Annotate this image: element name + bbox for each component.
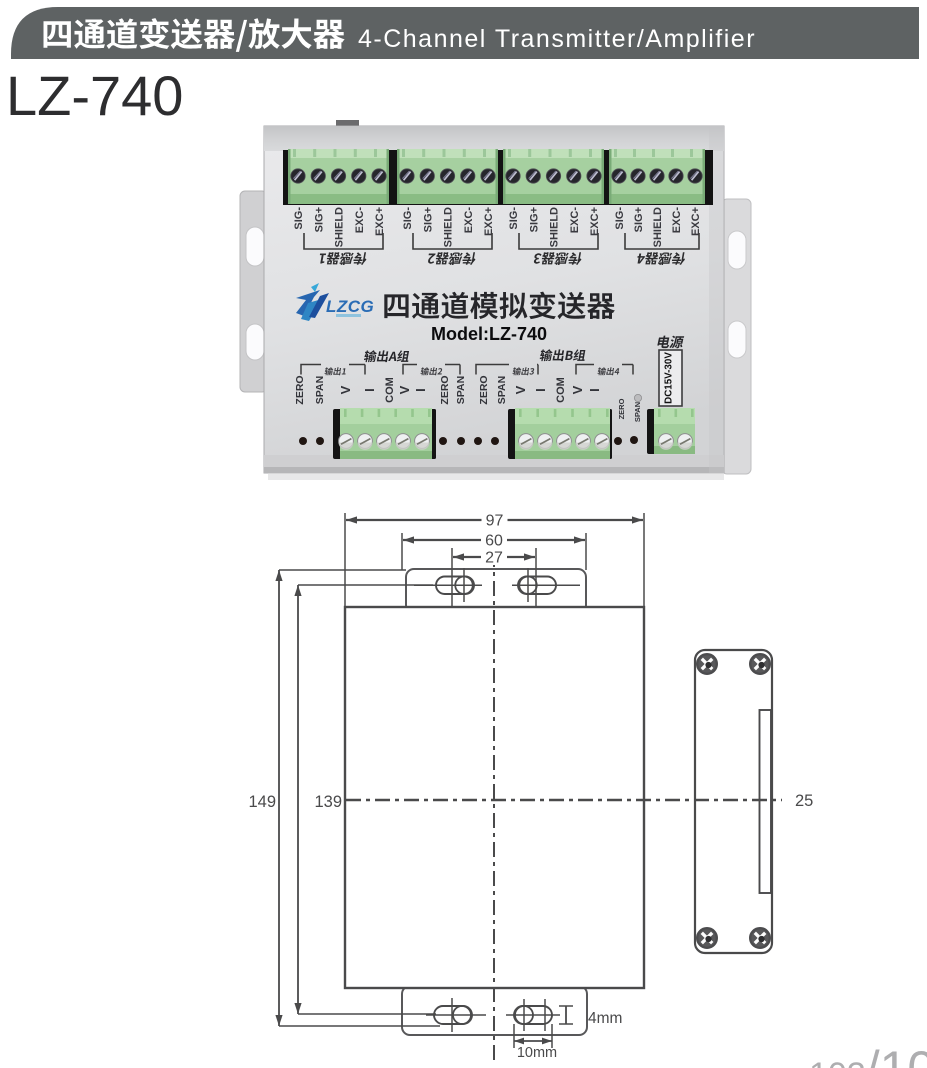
- svg-text:SIG+: SIG+: [313, 207, 325, 232]
- svg-text:ZERO: ZERO: [294, 375, 306, 404]
- svg-text:SPAN: SPAN: [455, 376, 467, 404]
- svg-text:EXC+: EXC+: [589, 207, 601, 236]
- svg-text:EXC+: EXC+: [374, 207, 386, 236]
- svg-text:SHIELD: SHIELD: [443, 207, 455, 247]
- svg-text:I: I: [533, 388, 548, 392]
- svg-text:COM: COM: [555, 377, 567, 403]
- svg-text:EXC+: EXC+: [483, 207, 495, 236]
- svg-text:SPAN: SPAN: [633, 402, 642, 422]
- svg-text:SHIELD: SHIELD: [549, 207, 561, 247]
- svg-text:DC15V-30V: DC15V-30V: [664, 352, 675, 404]
- svg-text:SIG+: SIG+: [422, 207, 434, 232]
- svg-text:SIG-: SIG-: [402, 207, 414, 230]
- svg-text:I: I: [587, 388, 602, 392]
- svg-text:Model:LZ-740: Model:LZ-740: [431, 324, 547, 344]
- svg-text:EXC+: EXC+: [690, 207, 702, 236]
- svg-text:I: I: [413, 388, 428, 392]
- svg-text:4-Channel Transmitter/Amplifie: 4-Channel Transmitter/Amplifier: [358, 25, 756, 53]
- svg-text:V: V: [338, 385, 353, 394]
- svg-text:SIG-: SIG-: [293, 207, 305, 230]
- svg-text:V: V: [570, 385, 585, 394]
- svg-text:97: 97: [486, 513, 504, 530]
- svg-text:COM: COM: [384, 377, 396, 403]
- svg-text:I: I: [362, 388, 377, 392]
- svg-text:SIG+: SIG+: [528, 207, 540, 232]
- svg-text:EXC-: EXC-: [569, 207, 581, 234]
- svg-text:SIG-: SIG-: [614, 207, 626, 230]
- svg-text:27: 27: [485, 550, 503, 567]
- svg-text:SPAN: SPAN: [496, 376, 508, 404]
- svg-text:ZERO: ZERO: [617, 398, 626, 419]
- svg-text:SPAN: SPAN: [314, 376, 326, 404]
- svg-text:EXC-: EXC-: [463, 207, 475, 234]
- svg-text:139: 139: [314, 793, 342, 811]
- svg-text:EXC-: EXC-: [354, 207, 366, 234]
- svg-text:ZERO: ZERO: [439, 375, 451, 404]
- svg-text:ZERO: ZERO: [478, 375, 490, 404]
- svg-text:V: V: [397, 385, 412, 394]
- svg-text:4mm: 4mm: [588, 1010, 622, 1027]
- svg-text:EXC-: EXC-: [671, 207, 683, 234]
- svg-text:10mm: 10mm: [517, 1045, 557, 1061]
- svg-text:SHIELD: SHIELD: [334, 207, 346, 247]
- svg-text:LZCG: LZCG: [326, 297, 374, 316]
- svg-text:149: 149: [248, 793, 276, 811]
- svg-text:SIG-: SIG-: [508, 207, 520, 230]
- svg-text:25: 25: [795, 792, 813, 810]
- svg-text:SHIELD: SHIELD: [652, 207, 664, 247]
- svg-text:LZ-740: LZ-740: [6, 64, 183, 127]
- svg-text:SIG+: SIG+: [633, 207, 645, 232]
- svg-text:60: 60: [485, 533, 503, 550]
- svg-text:V: V: [513, 385, 528, 394]
